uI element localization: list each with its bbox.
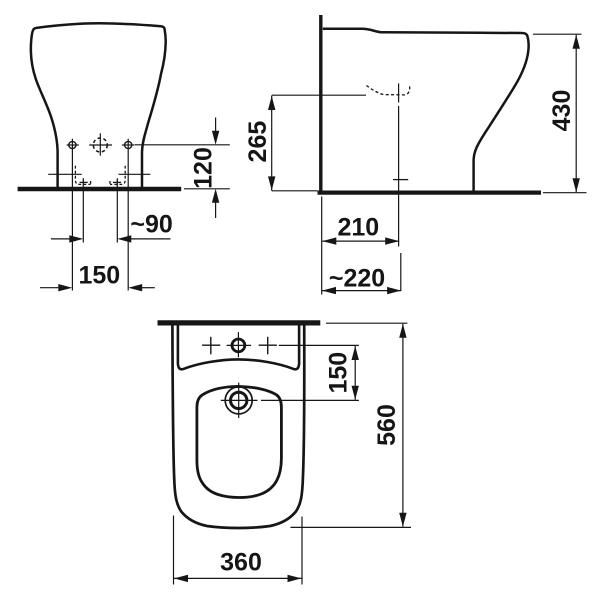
svg-text:265: 265 [244, 121, 272, 163]
svg-text:360: 360 [220, 548, 262, 576]
svg-text:120: 120 [190, 147, 218, 189]
svg-text:~90: ~90 [130, 210, 172, 238]
svg-text:430: 430 [548, 90, 576, 132]
svg-text:560: 560 [373, 404, 401, 446]
svg-text:150: 150 [78, 261, 120, 289]
svg-text:~220: ~220 [329, 265, 385, 293]
svg-text:210: 210 [337, 214, 379, 242]
svg-text:150: 150 [325, 352, 353, 394]
